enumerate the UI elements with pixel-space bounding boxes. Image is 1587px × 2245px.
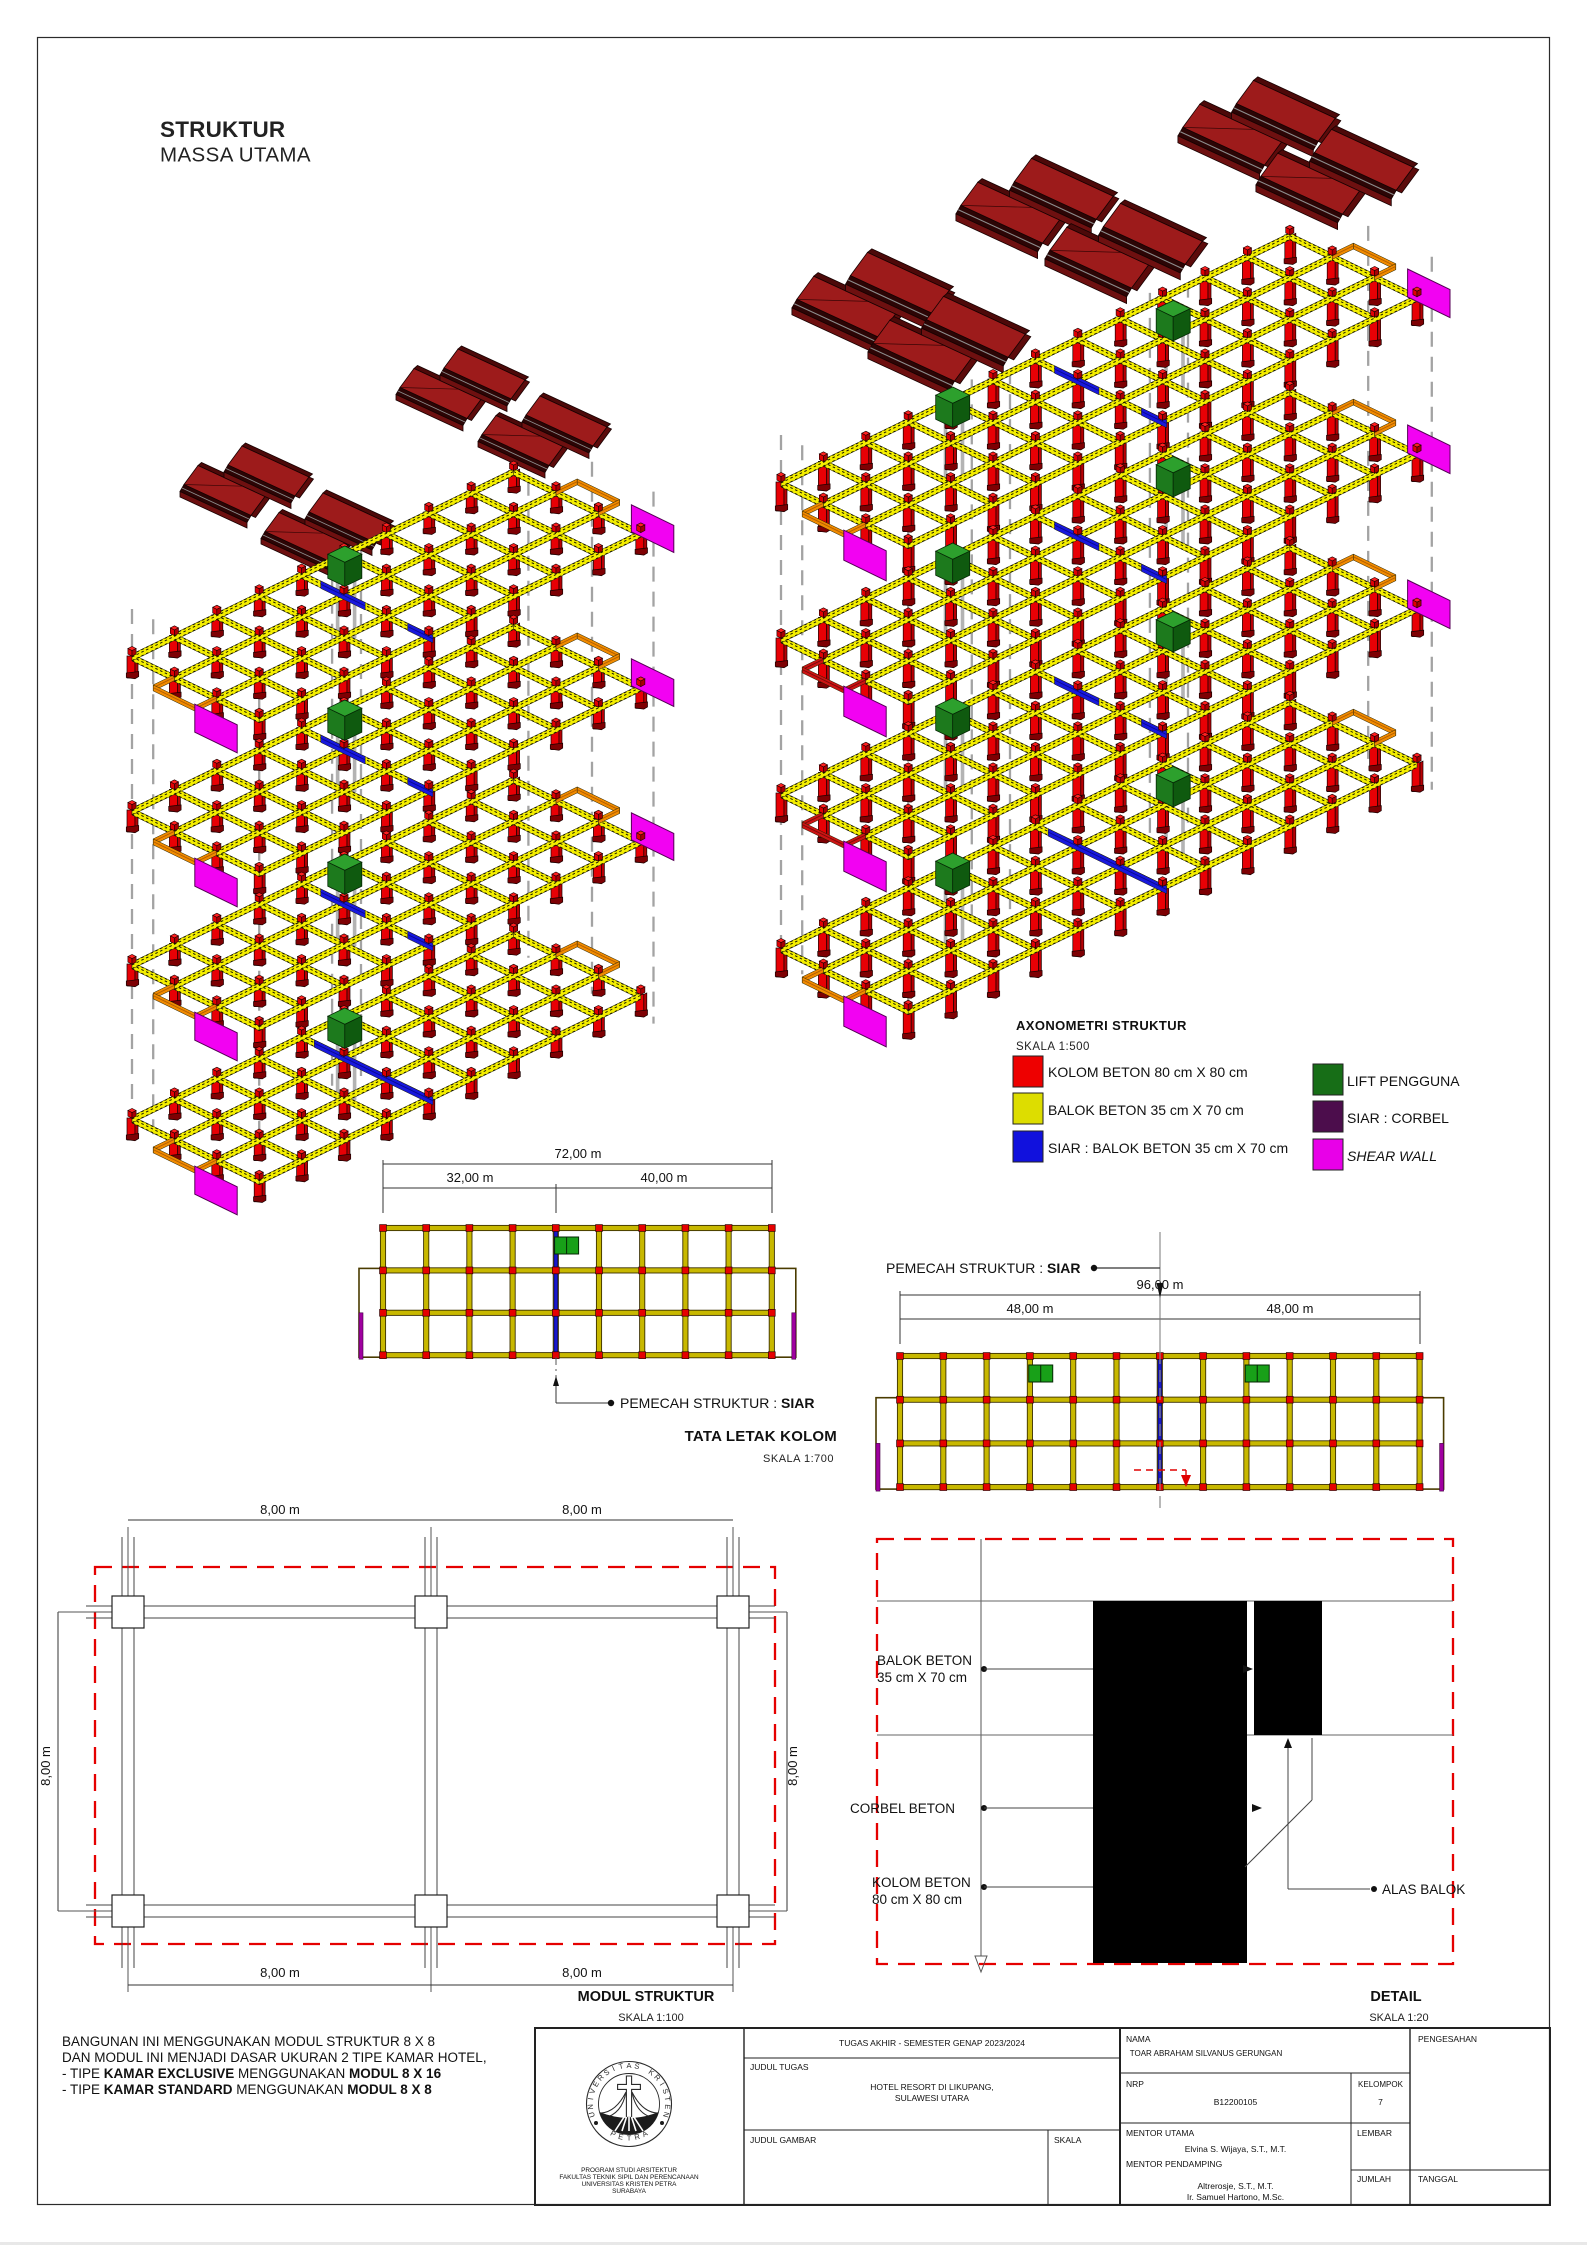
svg-text:E: E: [617, 2132, 624, 2142]
svg-text:DAN MODUL INI MENJADI DASAR UK: DAN MODUL INI MENJADI DASAR UKURAN 2 TIP…: [62, 2050, 487, 2065]
svg-text:SKALA: SKALA: [1054, 2135, 1082, 2145]
svg-text:E: E: [663, 2104, 672, 2110]
svg-text:SIAR : CORBEL: SIAR : CORBEL: [1347, 1110, 1449, 1126]
svg-text:SKALA 1:500: SKALA 1:500: [1016, 1041, 1090, 1053]
svg-text:T: T: [627, 2133, 632, 2142]
svg-text:LIFT PENGGUNA: LIFT PENGGUNA: [1347, 1073, 1460, 1089]
svg-text:U: U: [587, 2111, 597, 2119]
svg-text:MENTOR UTAMA: MENTOR UTAMA: [1126, 2128, 1194, 2138]
svg-text:PENGESAHAN: PENGESAHAN: [1418, 2034, 1477, 2044]
svg-text:P: P: [609, 2129, 618, 2139]
svg-text:TATA LETAK KOLOM: TATA LETAK KOLOM: [685, 1428, 837, 1445]
svg-text:48,00 m: 48,00 m: [1007, 1301, 1054, 1316]
svg-text:R: R: [633, 2132, 641, 2142]
svg-text:N: N: [586, 2104, 595, 2110]
svg-text:CORBEL BETON: CORBEL BETON: [850, 1801, 955, 1816]
svg-text:SULAWESI UTARA: SULAWESI UTARA: [895, 2093, 969, 2103]
svg-text:48,00 m: 48,00 m: [1267, 1301, 1314, 1316]
svg-text:I: I: [658, 2081, 667, 2087]
svg-text:BALOK BETON: BALOK BETON: [877, 1653, 972, 1668]
svg-text:80 cm X 80 cm: 80 cm X 80 cm: [872, 1892, 962, 1907]
svg-text:I: I: [611, 2064, 617, 2073]
svg-text:BANGUNAN INI MENGGUNAKAN MODUL: BANGUNAN INI MENGGUNAKAN MODUL STRUKTUR …: [62, 2034, 435, 2049]
svg-text:ALAS BALOK: ALAS BALOK: [1382, 1882, 1465, 1897]
svg-text:SKALA 1:700: SKALA 1:700: [763, 1453, 834, 1465]
svg-text:S: S: [660, 2087, 670, 2095]
svg-text:8,00 m: 8,00 m: [260, 1502, 300, 1517]
svg-text:32,00 m: 32,00 m: [447, 1170, 494, 1185]
svg-text:UNIVERSITAS KRISTEN PETRA: UNIVERSITAS KRISTEN PETRA: [582, 2181, 677, 2188]
svg-text:KOLOM BETON: KOLOM BETON: [872, 1875, 971, 1890]
svg-text:PEMECAH STRUKTUR : SIAR: PEMECAH STRUKTUR : SIAR: [886, 1260, 1080, 1276]
svg-text:8,00 m: 8,00 m: [562, 1502, 602, 1517]
svg-text:MODUL STRUKTUR: MODUL STRUKTUR: [578, 1989, 715, 2005]
svg-text:FAKULTAS TEKNIK SIPIL DAN PERE: FAKULTAS TEKNIK SIPIL DAN PERENCANAAN: [559, 2174, 699, 2181]
svg-text:SURABAYA: SURABAYA: [612, 2188, 647, 2195]
svg-text:SKALA 1:20: SKALA 1:20: [1369, 2012, 1428, 2024]
svg-text:PROGRAM STUDI ARSITEKTUR: PROGRAM STUDI ARSITEKTUR: [581, 2167, 677, 2174]
svg-text:JUDUL GAMBAR: JUDUL GAMBAR: [750, 2135, 816, 2145]
svg-text:S: S: [634, 2061, 641, 2071]
svg-text:A: A: [640, 2129, 649, 2139]
svg-text:DETAIL: DETAIL: [1370, 1989, 1421, 2005]
svg-text:I: I: [586, 2097, 595, 2100]
svg-text:KOLOM BETON 80 cm X 80 cm: KOLOM BETON 80 cm X 80 cm: [1048, 1064, 1248, 1080]
svg-text:72,00 m: 72,00 m: [555, 1146, 602, 1161]
svg-text:TOAR ABRAHAM SILVANUS GERUNGAN: TOAR ABRAHAM SILVANUS GERUNGAN: [1130, 2049, 1283, 2058]
svg-text:SHEAR WALL: SHEAR WALL: [1347, 1148, 1437, 1164]
svg-text:B12200105: B12200105: [1214, 2097, 1258, 2107]
svg-text:35 cm X 70 cm: 35 cm X 70 cm: [877, 1670, 967, 1685]
svg-text:NAMA: NAMA: [1126, 2034, 1151, 2044]
svg-text:8,00 m: 8,00 m: [562, 1965, 602, 1980]
svg-text:- TIPE KAMAR STANDARD MENGGUNA: - TIPE KAMAR STANDARD MENGGUNAKAN MODUL …: [62, 2082, 432, 2097]
svg-text:TUGAS AKHIR - SEMESTER GENAP 2: TUGAS AKHIR - SEMESTER GENAP 2023/2024: [839, 2038, 1025, 2048]
svg-text:8,00 m: 8,00 m: [260, 1965, 300, 1980]
svg-text:PEMECAH STRUKTUR : SIAR: PEMECAH STRUKTUR : SIAR: [620, 1395, 814, 1411]
svg-text:MASSA UTAMA: MASSA UTAMA: [160, 144, 311, 167]
svg-text:HOTEL RESORT DI LIKUPANG,: HOTEL RESORT DI LIKUPANG,: [870, 2082, 993, 2092]
svg-text:AXONOMETRI STRUKTUR: AXONOMETRI STRUKTUR: [1016, 1018, 1187, 1033]
svg-text:N: N: [661, 2111, 671, 2119]
svg-text:- TIPE KAMAR EXCLUSIVE MENGGUN: - TIPE KAMAR EXCLUSIVE MENGGUNAKAN MODUL…: [62, 2066, 442, 2081]
svg-text:JUDUL TUGAS: JUDUL TUGAS: [750, 2062, 809, 2072]
svg-text:S: S: [602, 2067, 611, 2077]
svg-text:JUMLAH: JUMLAH: [1357, 2174, 1391, 2184]
svg-text:40,00 m: 40,00 m: [641, 1170, 688, 1185]
svg-text:Elvina S. Wijaya, S.T., M.T.: Elvina S. Wijaya, S.T., M.T.: [1185, 2144, 1287, 2154]
svg-text:KELOMPOK: KELOMPOK: [1358, 2080, 1404, 2089]
svg-text:T: T: [618, 2061, 625, 2071]
svg-text:V: V: [587, 2087, 597, 2095]
svg-text:SKALA 1:100: SKALA 1:100: [618, 2012, 683, 2024]
svg-text:A: A: [626, 2061, 631, 2070]
svg-text:MENTOR PENDAMPING: MENTOR PENDAMPING: [1126, 2159, 1222, 2169]
svg-text:NRP: NRP: [1126, 2079, 1144, 2089]
svg-text:Ir. Samuel Hartono, M.Sc.: Ir. Samuel Hartono, M.Sc.: [1187, 2192, 1284, 2202]
svg-text:8,00 m: 8,00 m: [785, 1746, 800, 1786]
svg-text:Altrerosje, S.T., M.T.: Altrerosje, S.T., M.T.: [1197, 2181, 1273, 2191]
svg-text:T: T: [663, 2096, 673, 2102]
svg-text:R: R: [652, 2073, 663, 2084]
svg-text:LEMBAR: LEMBAR: [1357, 2128, 1392, 2138]
svg-text:8,00 m: 8,00 m: [38, 1746, 53, 1786]
svg-text:BALOK BETON 35 cm X 70 cm: BALOK BETON 35 cm X 70 cm: [1048, 1102, 1244, 1118]
svg-text:SIAR : BALOK BETON 35 cm X 70: SIAR : BALOK BETON 35 cm X 70 cm: [1048, 1140, 1288, 1156]
svg-text:TANGGAL: TANGGAL: [1418, 2174, 1458, 2184]
svg-text:STRUKTUR: STRUKTUR: [160, 117, 285, 142]
svg-text:7: 7: [1378, 2097, 1383, 2107]
